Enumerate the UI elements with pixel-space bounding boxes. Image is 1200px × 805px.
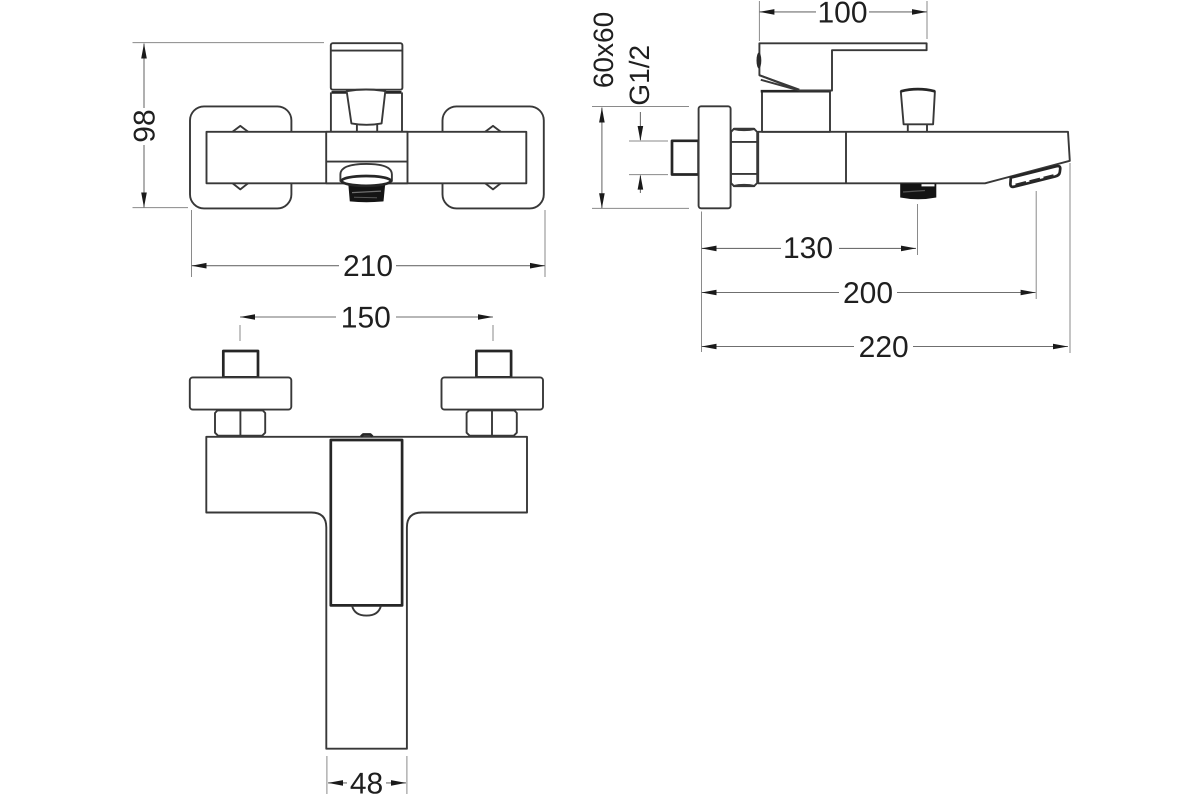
svg-text:48: 48 bbox=[350, 767, 383, 800]
svg-text:150: 150 bbox=[341, 302, 391, 335]
svg-text:60x60: 60x60 bbox=[588, 12, 619, 88]
svg-text:200: 200 bbox=[843, 277, 893, 310]
svg-text:98: 98 bbox=[129, 109, 162, 142]
svg-text:130: 130 bbox=[783, 232, 833, 265]
svg-text:G1/2: G1/2 bbox=[624, 45, 655, 106]
svg-text:220: 220 bbox=[859, 331, 909, 364]
svg-text:210: 210 bbox=[343, 250, 393, 283]
svg-text:100: 100 bbox=[817, 0, 867, 30]
